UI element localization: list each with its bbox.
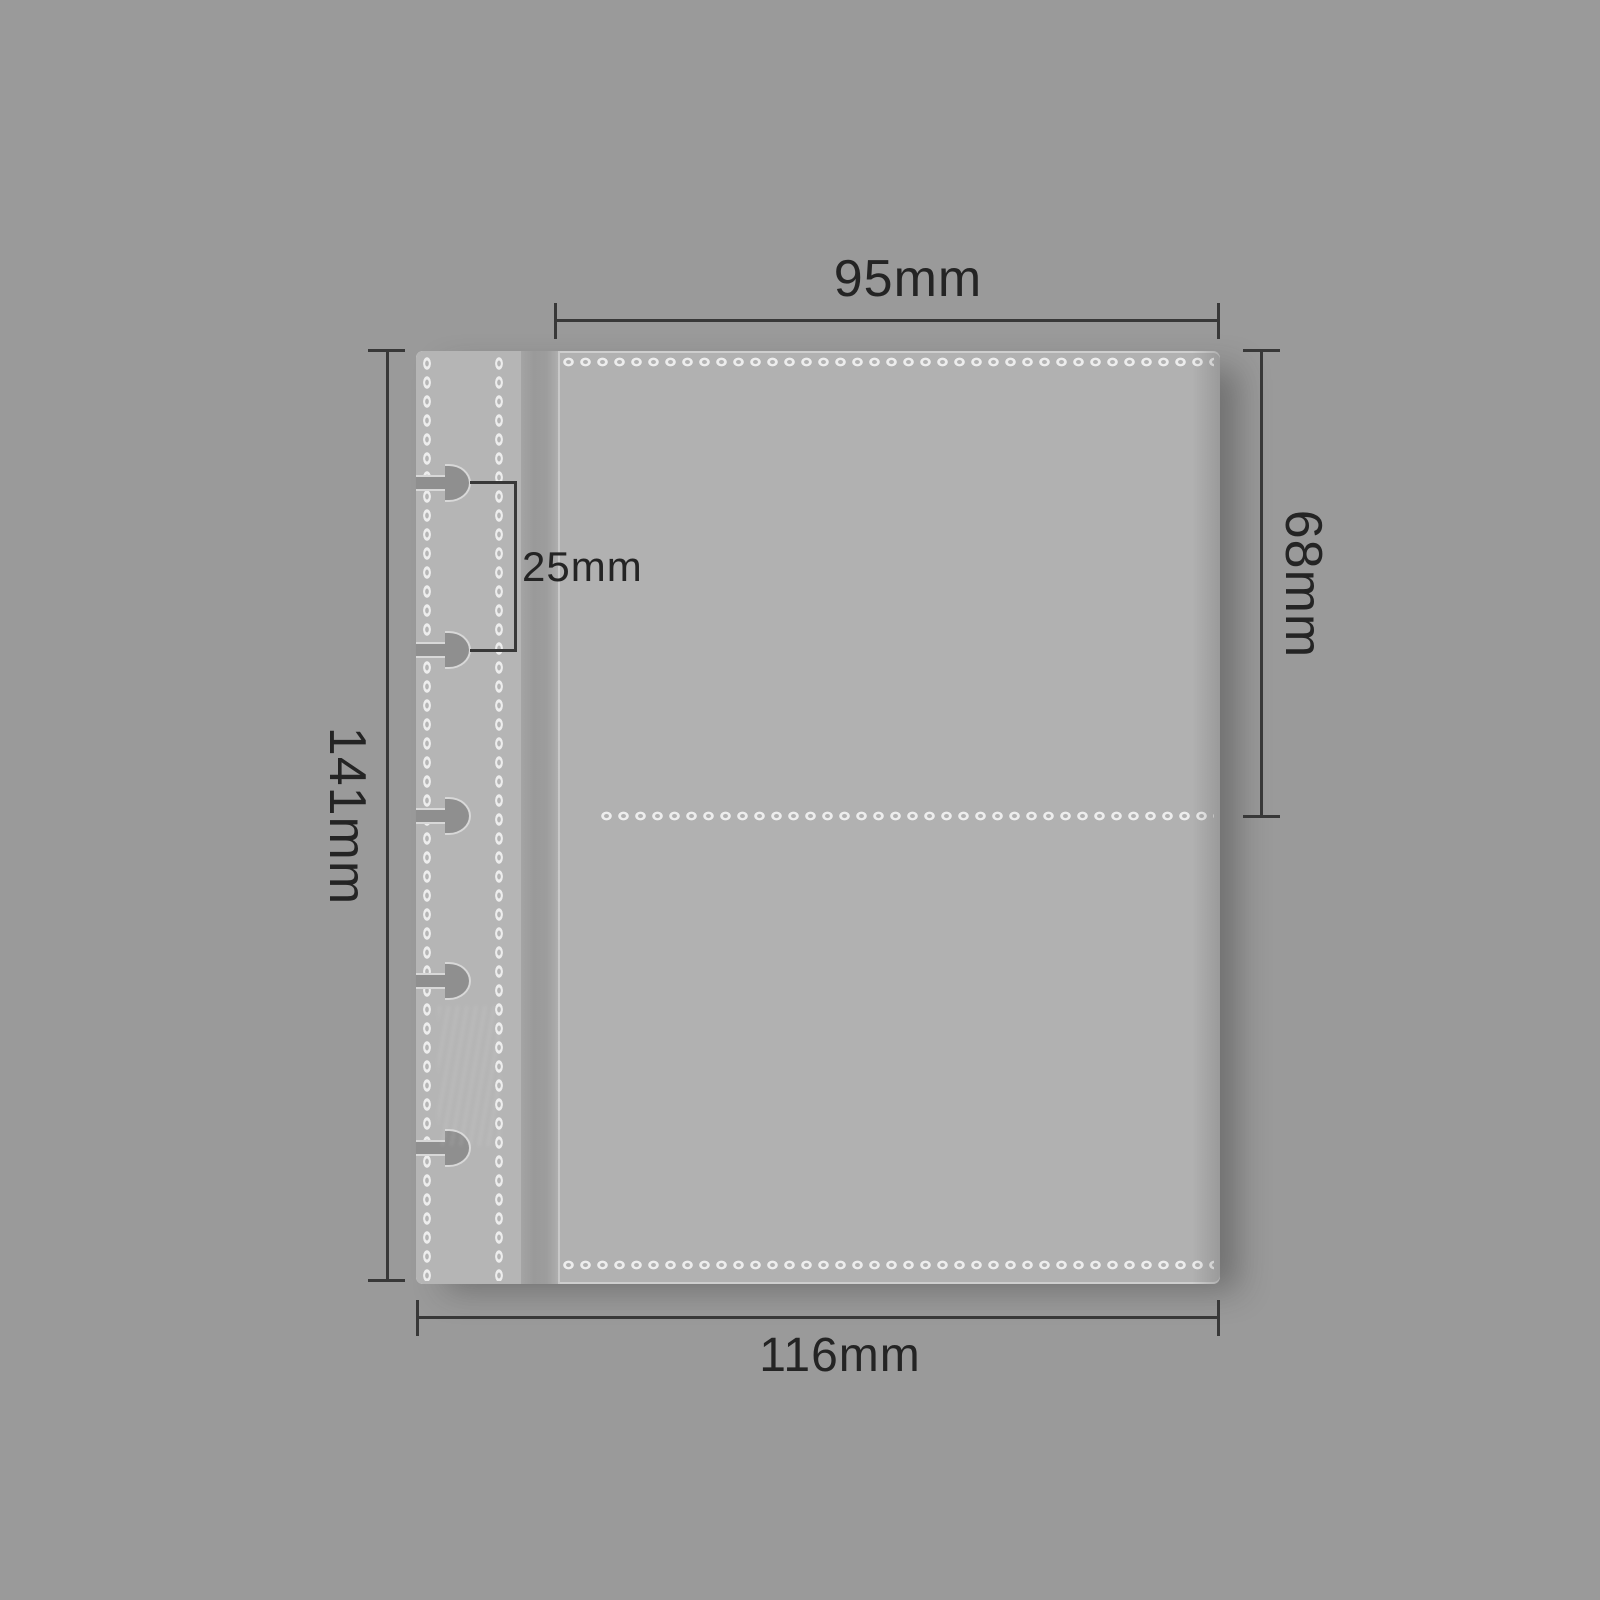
dim-left-line	[386, 350, 389, 1282]
dim-label-page-width: 116mm	[759, 1332, 921, 1380]
pocket-stitch-top	[560, 354, 1214, 370]
punch-hole-round	[445, 631, 471, 669]
dim-right-line	[1260, 350, 1263, 818]
punch-hole-1	[416, 464, 472, 502]
dim-right-tick-bottom	[1243, 815, 1280, 818]
dim-bottom-line	[417, 1316, 1220, 1319]
dim-bottom-tick-left	[416, 1300, 419, 1336]
punch-hole-slit	[416, 973, 448, 989]
product-dimension-diagram: 95mm 68mm 141mm 116mm 25mm	[0, 0, 1600, 1600]
embossed-watermark	[438, 1006, 500, 1146]
dim-bottom-tick-right	[1217, 1300, 1220, 1336]
punch-hole-3	[416, 797, 472, 835]
punch-hole-round	[445, 464, 471, 502]
dim-spacing-top-segment	[470, 481, 517, 484]
punch-hole-round	[445, 962, 471, 1000]
dim-top-tick-left	[554, 303, 557, 339]
fold-seam	[521, 351, 560, 1284]
dim-right-tick-top	[1243, 349, 1280, 352]
punch-hole-round	[445, 797, 471, 835]
punch-hole-slit	[416, 475, 448, 491]
dim-top-line	[555, 319, 1220, 322]
punch-hole-slit	[416, 642, 448, 658]
dim-left-tick-top	[368, 349, 405, 352]
punch-hole-slit	[416, 808, 448, 824]
binder-pocket-page	[416, 351, 1220, 1284]
dim-left-tick-bottom	[368, 1279, 405, 1282]
dim-spacing-bottom-segment	[470, 649, 517, 652]
dim-label-pocket-height: 68mm	[1277, 510, 1329, 658]
dim-label-hole-spacing: 25mm	[522, 546, 643, 588]
pocket-stitch-bottom	[560, 1257, 1214, 1273]
dim-label-pocket-width: 95mm	[834, 253, 982, 305]
dim-label-page-height: 141mm	[321, 727, 373, 905]
punch-hole-4	[416, 962, 472, 1000]
pocket-stitch-middle	[598, 808, 1214, 824]
dim-top-tick-right	[1217, 303, 1220, 339]
punch-hole-2	[416, 631, 472, 669]
dim-spacing-vertical-segment	[514, 481, 517, 652]
